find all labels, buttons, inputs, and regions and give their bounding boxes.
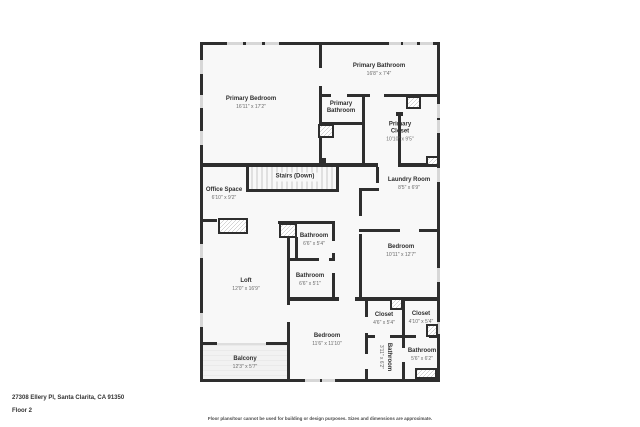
floorplan-page: Primary Bedroom 16'11" x 17'2" Primary B… (0, 0, 640, 427)
room-name: Bedroom (312, 333, 341, 340)
room-label-primary-bathroom-main: Primary Bathroom 16'8" x 7'4" (353, 63, 405, 77)
room-label-stairs: Stairs (Down) (273, 173, 318, 182)
room-label-office-space: Office Space 6'10" x 9'2" (206, 187, 242, 201)
room-name: Bedroom (386, 244, 416, 251)
room-dims: 8'5" x 6'9" (388, 185, 430, 191)
room-label-primary-bathroom-small: Primary Bathroom (322, 101, 360, 115)
shower-upper-bathroom (280, 224, 296, 237)
room-dims: 4'10" x 5'4" (409, 319, 434, 325)
room-label-laundry-room: Laundry Room 8'5" x 6'9" (388, 177, 430, 191)
room-label-bathroom-bottom-right: Bathroom 5'6" x 6'2" (408, 348, 436, 362)
room-name: Primary Bedroom (226, 96, 276, 103)
room-dims: 11'6" x 11'10" (312, 341, 341, 347)
property-address: 27308 Ellery Pl, Santa Clarita, CA 91350 (12, 395, 124, 401)
fixture-closet-corner (427, 157, 438, 165)
room-name: Primary Closet (381, 122, 419, 136)
room-label-balcony: Balcony 12'3" x 5'7" (233, 356, 258, 370)
room-name: Office Space (206, 187, 242, 194)
room-name: Balcony (233, 356, 258, 363)
floor-label: Floor 2 (12, 408, 32, 414)
room-label-closet-left: Closet 4'6" x 5'4" (373, 312, 395, 326)
room-label-primary-bedroom: Primary Bedroom 16'11" x 17'2" (226, 96, 276, 110)
fixture-primary-closet (407, 97, 420, 108)
room-name: Stairs (Down) (276, 174, 315, 181)
room-name: Bathroom (408, 348, 436, 355)
room-dims: 3'11" x 6'2" (378, 343, 384, 371)
room-dims: 6'6" x 5'4" (300, 241, 328, 247)
room-label-bathroom-vertical: Bathroom 3'11" x 6'2" (378, 343, 392, 371)
fixture-closet-left (391, 299, 402, 309)
room-dims: 4'6" x 5'4" (373, 320, 395, 326)
room-dims: 16'8" x 7'4" (353, 71, 405, 77)
fixture-hall-shaft (219, 219, 247, 233)
floorplan-drawing (0, 0, 640, 427)
room-name: Loft (232, 278, 259, 285)
room-label-bedroom-right: Bedroom 10'11" x 12'7" (386, 244, 416, 258)
room-name: Bathroom (300, 233, 328, 240)
room-label-bedroom-lower: Bedroom 11'6" x 11'10" (312, 333, 341, 347)
room-name: Bathroom (296, 273, 324, 280)
room-dims: 12'3" x 5'7" (233, 364, 258, 370)
shower-primary-bathroom (319, 125, 333, 137)
room-name: Primary Bathroom (322, 101, 360, 115)
room-dims: 10'10" x 9'5" (381, 137, 419, 143)
room-label-bathroom-lower: Bathroom 6'6" x 5'1" (296, 273, 324, 287)
room-label-bathroom-upper: Bathroom 6'6" x 5'4" (300, 233, 328, 247)
room-label-closet-right: Closet 4'10" x 5'4" (409, 311, 434, 325)
room-dims: 12'0" x 16'9" (232, 286, 259, 292)
room-dims: 6'10" x 9'2" (206, 195, 242, 201)
room-name: Bathroom (385, 343, 392, 371)
shower-bottom-bathroom (416, 369, 436, 378)
room-dims: 10'11" x 12'7" (386, 252, 416, 258)
room-label-primary-closet: Primary Closet 10'10" x 9'5" (381, 122, 419, 143)
room-name: Closet (373, 312, 395, 319)
disclaimer-text: Floor plans/tour cannot be used for buil… (160, 416, 480, 421)
fixture-closet-right (427, 325, 437, 336)
room-dims: 16'11" x 17'2" (226, 104, 276, 110)
room-dims: 6'6" x 5'1" (296, 281, 324, 287)
room-label-loft: Loft 12'0" x 16'9" (232, 278, 259, 292)
room-name: Laundry Room (388, 177, 430, 184)
room-name: Closet (409, 311, 434, 318)
room-name: Primary Bathroom (353, 63, 405, 70)
room-dims: 5'6" x 6'2" (408, 356, 436, 362)
balcony-slider-door (217, 343, 266, 345)
